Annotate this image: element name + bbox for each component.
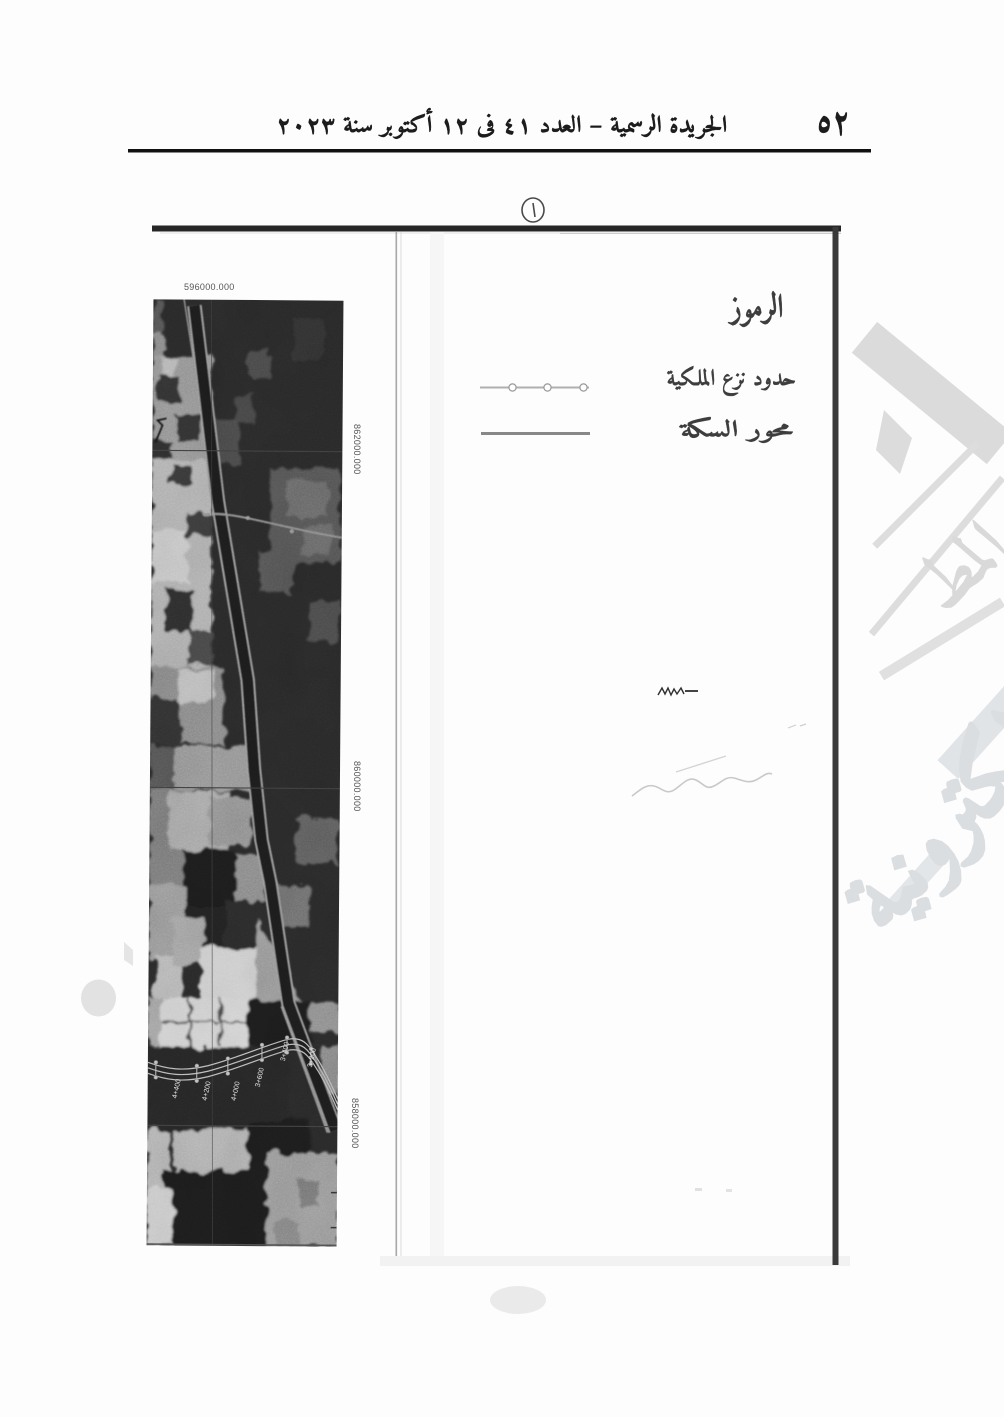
- svg-text:596000.000: 596000.000: [184, 282, 235, 292]
- svg-text:862000.000: 862000.000: [352, 424, 362, 475]
- svg-text:860000.000: 860000.000: [352, 761, 362, 812]
- svg-text:858000.000: 858000.000: [350, 1098, 360, 1149]
